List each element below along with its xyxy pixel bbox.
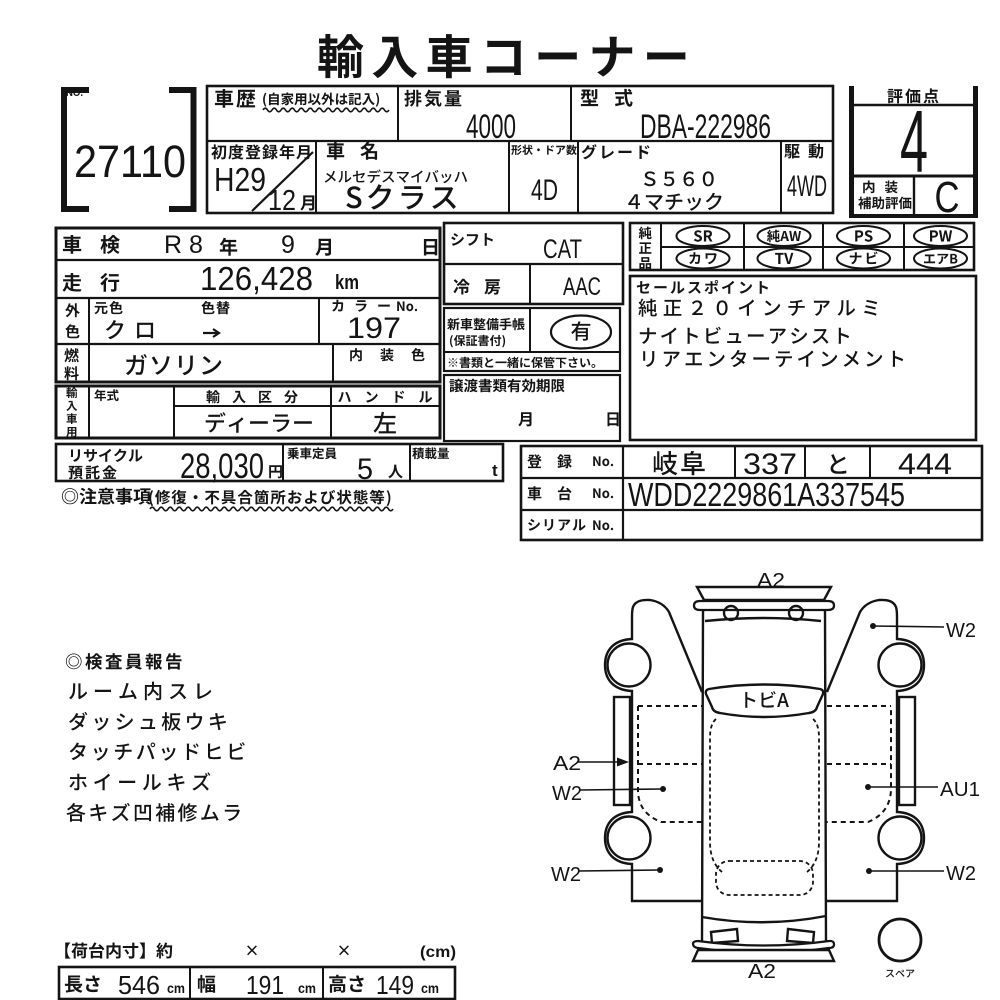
svg-text:CAT: CAT	[543, 234, 582, 264]
svg-text:NO.: NO.	[66, 87, 83, 99]
svg-text:4D: 4D	[531, 174, 558, 207]
svg-text:27110: 27110	[74, 136, 186, 187]
svg-text:8: 8	[189, 231, 203, 259]
svg-text:C: C	[935, 173, 960, 222]
svg-text:R: R	[164, 231, 182, 259]
svg-text:197: 197	[347, 312, 401, 345]
svg-text:A2: A2	[553, 753, 581, 775]
svg-text:(cm): (cm)	[420, 944, 456, 961]
svg-text:9: 9	[281, 231, 295, 259]
svg-text:AAC: AAC	[563, 273, 601, 301]
svg-text:WDD2229861A337545: WDD2229861A337545	[628, 476, 905, 513]
svg-text:149: 149	[376, 970, 414, 1000]
svg-text:4: 4	[900, 92, 928, 191]
svg-text:cm: cm	[298, 980, 316, 996]
svg-text:W2: W2	[552, 783, 582, 805]
svg-text:5: 5	[357, 453, 373, 486]
svg-text:W2: W2	[946, 863, 976, 885]
svg-text:t: t	[492, 461, 498, 480]
svg-text:A2: A2	[748, 961, 776, 983]
svg-text:12: 12	[268, 185, 296, 217]
svg-text:cm: cm	[421, 980, 439, 996]
svg-text:W2: W2	[551, 864, 581, 886]
svg-text:AU1: AU1	[940, 779, 980, 801]
svg-text:W2: W2	[946, 620, 976, 642]
svg-text:A2: A2	[757, 570, 785, 592]
svg-text:4000: 4000	[466, 108, 516, 146]
svg-text:DBA-222986: DBA-222986	[640, 108, 771, 146]
svg-text:126,428: 126,428	[200, 260, 313, 297]
svg-text:cm: cm	[167, 980, 185, 996]
svg-text:546: 546	[118, 970, 160, 1000]
svg-text:4WD: 4WD	[787, 170, 827, 203]
svg-text:444: 444	[898, 448, 952, 481]
svg-text:28,030: 28,030	[180, 447, 264, 486]
svg-text:191: 191	[246, 970, 284, 1000]
svg-text:H29: H29	[214, 161, 266, 198]
svg-text:km: km	[335, 272, 359, 294]
